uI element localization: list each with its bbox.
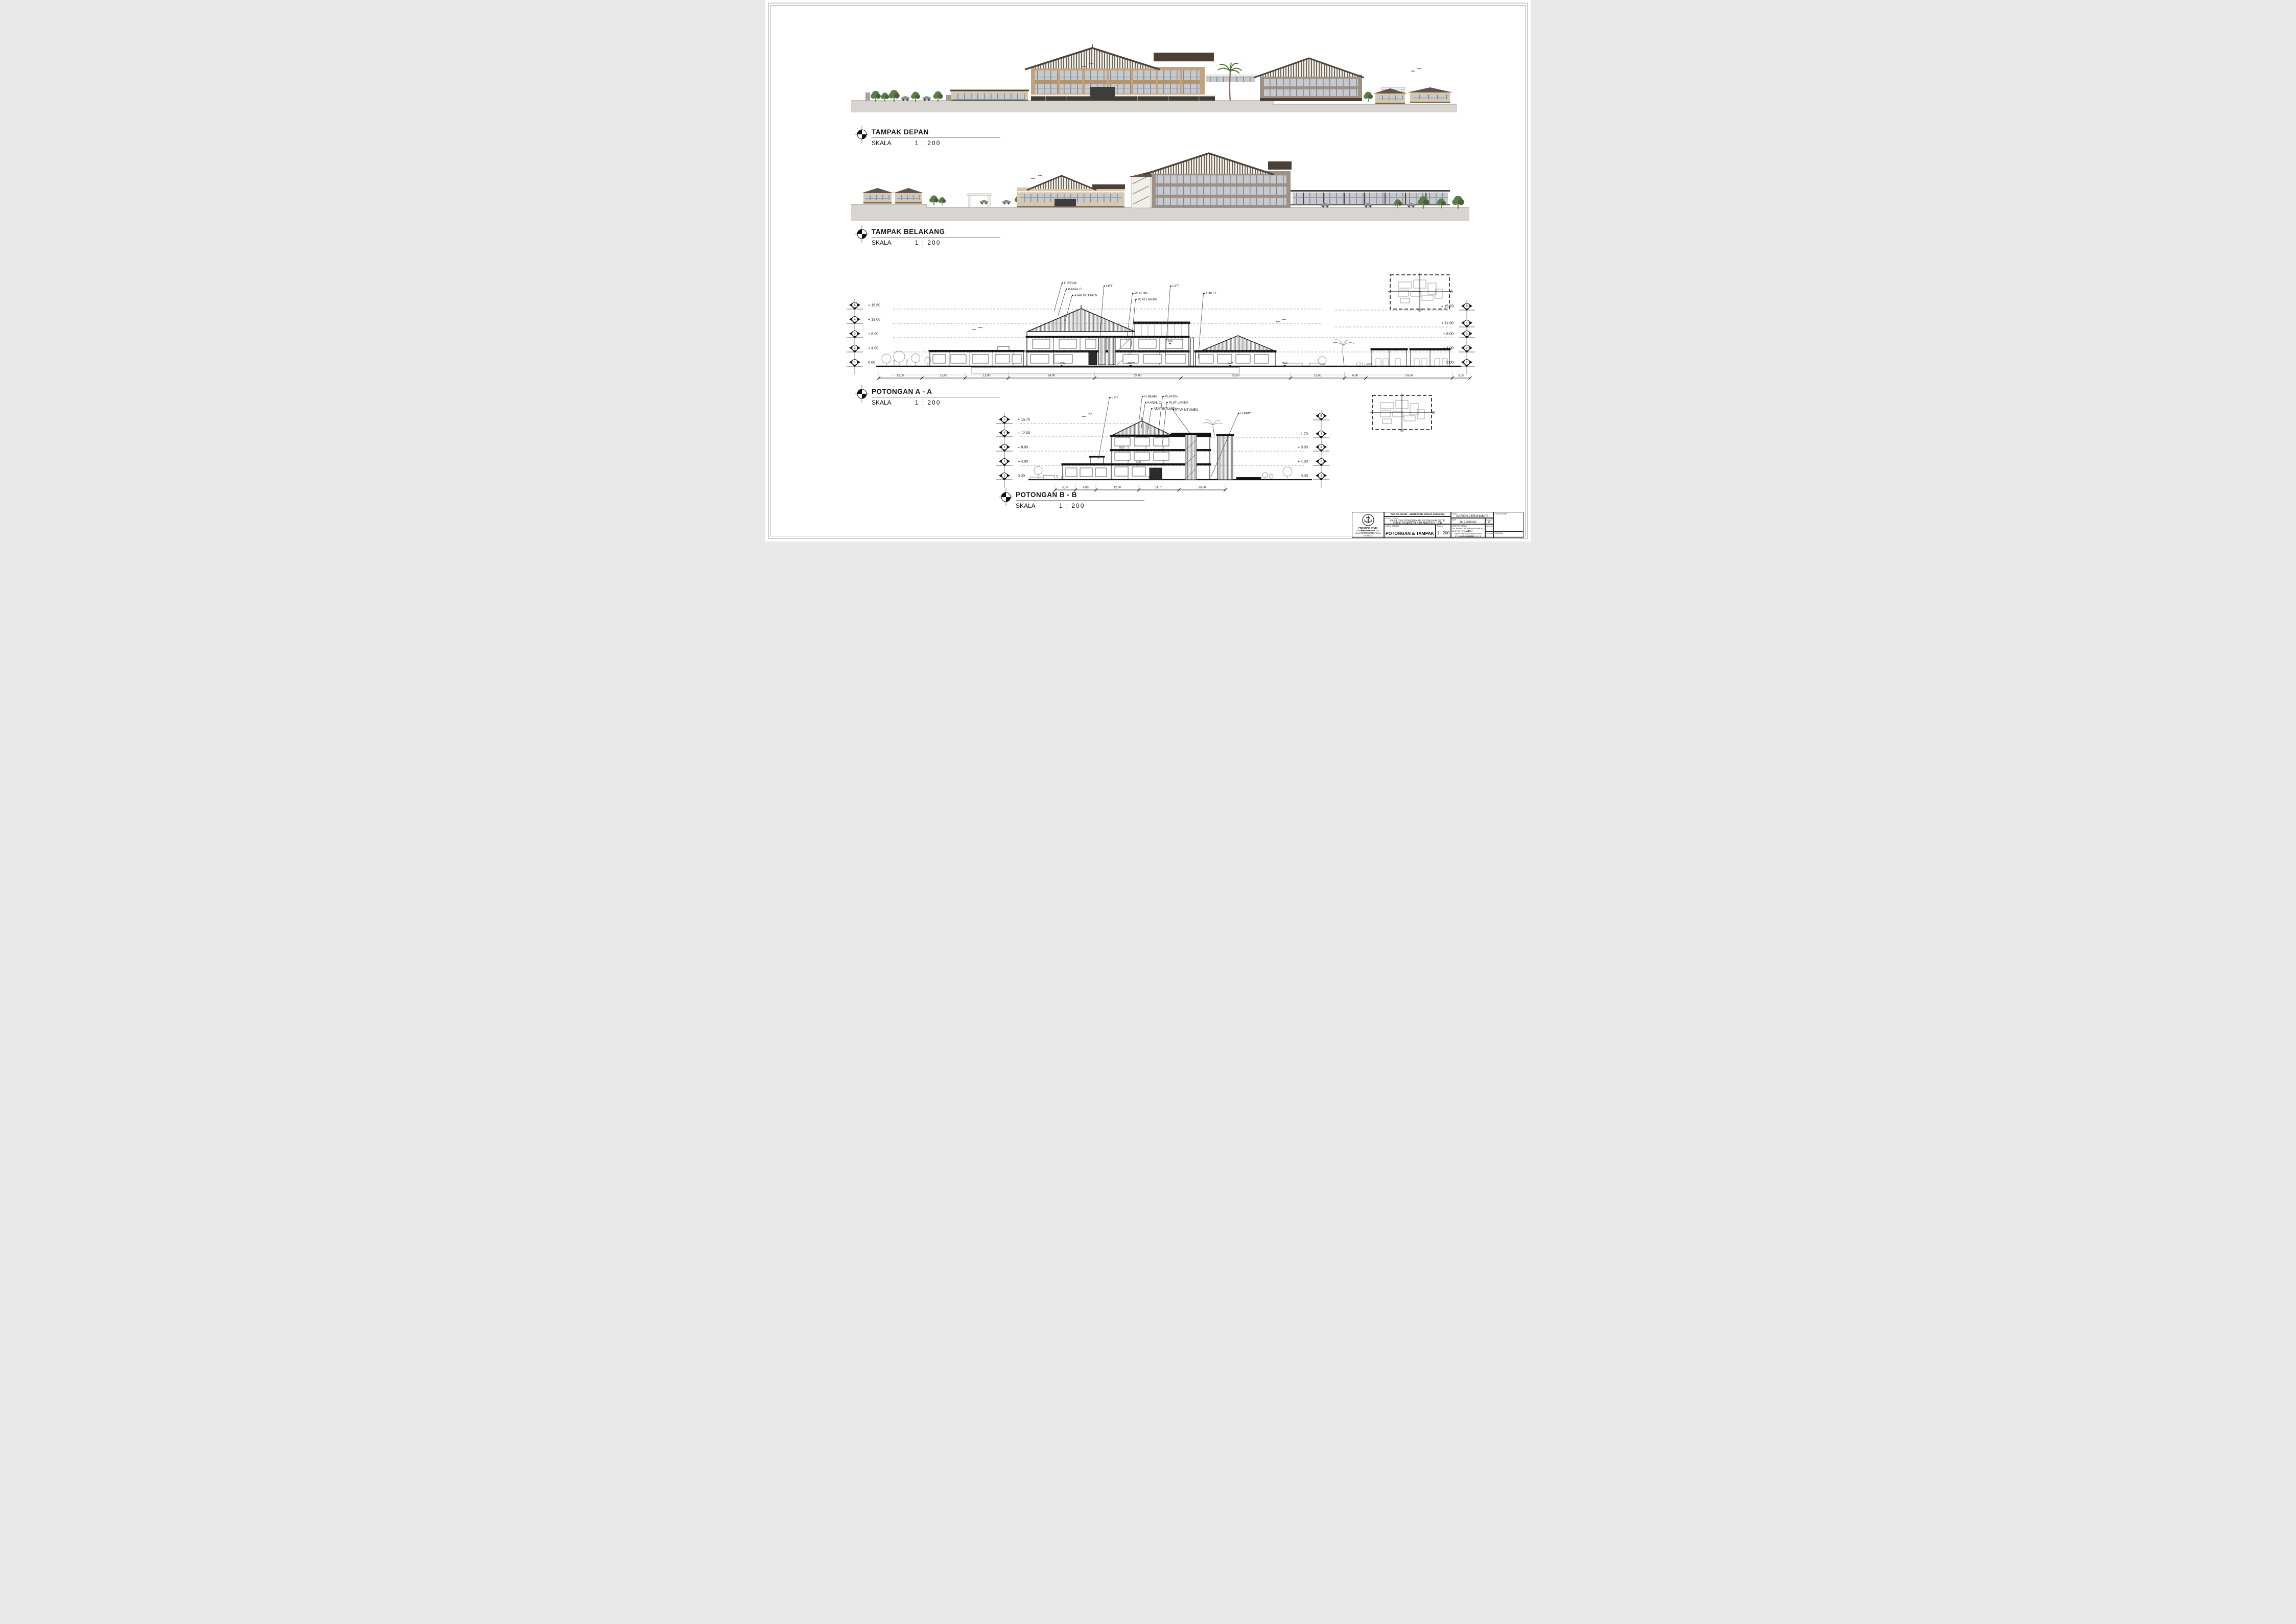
datum-symbol-icon [855, 225, 869, 243]
kelompok-cell: KELOMPOK 8 [1485, 518, 1493, 524]
label-rule [872, 137, 1000, 138]
nama-cell: NAMA AARON ABRAHAM P. [1451, 512, 1493, 518]
scale-label: SKALA [1016, 502, 1036, 509]
scale-value: 1 : 200 [915, 399, 941, 406]
svg-text:5,00: 5,00 [1458, 374, 1464, 378]
judul-gambar-label: JUDUL GAMBAR [1386, 525, 1400, 527]
svg-text:ATAP BITUMEN: ATAP BITUMEN [1074, 294, 1097, 297]
svg-text:+ 8.00: + 8.00 [868, 332, 878, 336]
svg-text:+ 15.60: + 15.60 [868, 303, 880, 308]
svg-text:+ 4.00: + 4.00 [1443, 346, 1454, 350]
lembar-label: LEMBAR [1487, 525, 1493, 527]
svg-text:12,50: 12,50 [1114, 486, 1121, 489]
view-title: TAMPAK DEPAN [872, 129, 1000, 136]
svg-text:8,00: 8,00 [1119, 446, 1124, 450]
svg-text:PLAFON: PLAFON [1135, 292, 1147, 295]
scale-label: SKALA [872, 239, 892, 246]
svg-text:LIFT: LIFT [1106, 285, 1113, 288]
scale-value: 1 : 200 [915, 139, 941, 147]
section-a-annotations: 5+ 15.604+ 12.003+ 8.002+ 4.0010.005+ 15… [847, 281, 1475, 380]
svg-text:LOBBY: LOBBY [1240, 412, 1251, 415]
label-rule [872, 397, 1000, 397]
svg-text:+ 11.70: + 11.70 [1296, 432, 1308, 436]
svg-text:+ 0.00: + 0.00 [1058, 362, 1065, 365]
svg-text:PLAT LANTAI: PLAT LANTAI [1138, 298, 1157, 301]
skala-value: 1 : 200 [1436, 531, 1450, 535]
scale-value: 1 : 200 [1059, 502, 1085, 509]
mentor-pendamping-2: IR. WANDA WIDIGDO, M. Si [1451, 535, 1485, 537]
skala-label: SKALA [1437, 525, 1443, 527]
datum-symbol-icon [999, 488, 1013, 506]
nrp-cell: NRP B12200080 [1451, 518, 1485, 524]
view-label-tampak-depan: TAMPAK DEPAN SKALA1 : 200 [855, 129, 1000, 147]
svg-text:LOBBY: LOBBY [1127, 362, 1135, 365]
view-label-tampak-belakang: TAMPAK BELAKANG SKALA1 : 200 [855, 228, 1000, 246]
view-label-potongan-b: POTONGAN B - B SKALA1 : 200 [999, 491, 1144, 509]
judul-gambar-cell: JUDUL GAMBAR POTONGAN & TAMPAK [1384, 524, 1436, 538]
view-title: POTONGAN A - A [872, 388, 1000, 395]
svg-text:13,50: 13,50 [1198, 486, 1206, 489]
svg-text:H BEAM: H BEAM [1064, 281, 1076, 285]
key-plan-b [1370, 393, 1435, 432]
svg-text:+ 8.00: + 8.00 [1298, 445, 1308, 450]
scale-label: SKALA [872, 399, 892, 406]
svg-text:0.00: 0.00 [868, 360, 875, 365]
title-block: PROGRAM STUDI ARSITEKTUR FAKULTAS TEKNIK… [1352, 512, 1524, 538]
tanggal-cell: TANGGAL [1493, 531, 1524, 538]
svg-text:6,00: 6,00 [1352, 374, 1358, 378]
svg-text:+ 15.70: + 15.70 [1018, 417, 1030, 422]
judul-tugas-cell: JUDUL TUGAS FASILITAS PENDIDIKAN SETINGK… [1384, 516, 1451, 524]
svg-text:LIFT: LIFT [1112, 396, 1118, 399]
pengesahan-cell: PENGESAHAN [1493, 512, 1524, 531]
student-name: AARON ABRAHAM P. [1451, 514, 1493, 518]
svg-text:ATAP BITUMEN: ATAP BITUMEN [1175, 408, 1198, 412]
svg-text:12,00: 12,00 [940, 374, 947, 378]
tampak-depan-elevation [851, 38, 1457, 121]
svg-text:+ 12.00: + 12.00 [1018, 431, 1030, 435]
university-logo-icon [1362, 513, 1375, 527]
svg-text:PLAT LANTAI: PLAT LANTAI [1169, 401, 1188, 405]
view-label-potongan-a: POTONGAN A - A SKALA1 : 200 [855, 388, 1000, 406]
svg-text:12,00: 12,00 [897, 374, 904, 378]
svg-text:15,00: 15,00 [1314, 374, 1321, 378]
student-id: B12200080 [1451, 521, 1485, 524]
svg-text:24,00: 24,00 [1405, 374, 1413, 378]
svg-text:24,00: 24,00 [1134, 374, 1142, 378]
label-rule [1016, 500, 1144, 501]
svg-text:6,00: 6,00 [1083, 486, 1088, 489]
title-block-logo-cell: PROGRAM STUDI ARSITEKTUR FAKULTAS TEKNIK… [1352, 512, 1384, 538]
pengesahan-label: PENGESAHAN [1495, 513, 1508, 515]
institution-university: UNIVERSITAS KRISTEN PETRA [1352, 532, 1384, 534]
drawing-sheet: TAMPAK DEPAN SKALA1 : 200 [765, 0, 1531, 542]
datum-symbol-icon [855, 126, 869, 143]
skala-cell: SKALA 1 : 200 [1436, 524, 1451, 538]
svg-text:+ 8.00: + 8.00 [1443, 332, 1454, 336]
svg-text:+ 4.00: + 4.00 [1298, 459, 1308, 464]
svg-text:TOILET: TOILET [1206, 292, 1217, 295]
svg-text:0.00: 0.00 [1282, 362, 1287, 365]
svg-text:4,00: 4,00 [1136, 461, 1141, 464]
svg-text:+ 15.70: + 15.70 [1441, 304, 1454, 309]
svg-text:30,50: 30,50 [1232, 374, 1239, 378]
potongan-a-section: 5+ 15.604+ 12.003+ 8.002+ 4.0010.005+ 15… [845, 265, 1475, 388]
svg-text:4,00: 4,00 [1167, 340, 1173, 343]
svg-text:KANAL C: KANAL C [1068, 288, 1082, 291]
view-title: POTONGAN B - B [1016, 491, 1144, 499]
scale-label: SKALA [872, 139, 892, 147]
institution-city: SURABAYA [1352, 535, 1384, 537]
svg-text:+ 0.00: + 0.00 [1146, 476, 1153, 479]
svg-text:6,00: 6,00 [1062, 486, 1068, 489]
view-title: TAMPAK BELAKANG [872, 228, 1000, 236]
svg-text:KANAL C: KANAL C [1147, 401, 1161, 405]
svg-text:H BEAM: H BEAM [1144, 395, 1157, 398]
svg-text:12,00: 12,00 [983, 374, 991, 378]
svg-text:LIFT: LIFT [1173, 285, 1179, 288]
mentor-pendamping-label: MENTOR PENDAMPING [1452, 530, 1473, 532]
svg-text:+ 8.00: + 8.00 [1018, 445, 1028, 450]
svg-text:+ 4.00: + 4.00 [868, 346, 878, 350]
svg-text:+ 12.00: + 12.00 [868, 317, 880, 322]
svg-text:11,70: 11,70 [1155, 486, 1162, 489]
svg-text:+ 4.00: + 4.00 [1018, 459, 1028, 464]
svg-text:0.00: 0.00 [1018, 474, 1025, 478]
svg-text:0.00: 0.00 [1446, 360, 1454, 365]
svg-text:0.00: 0.00 [1228, 362, 1233, 365]
datum-symbol-icon [855, 385, 869, 403]
lembar-cell: LEMBAR [1485, 524, 1493, 531]
kelompok-value: 8 [1486, 521, 1493, 524]
tanggal-label: TANGGAL [1495, 532, 1504, 534]
mentor-cell: MENTOR UTAMA IR. BENNY POERBANTANOE, MSP… [1451, 524, 1485, 538]
svg-text:0.00: 0.00 [1301, 474, 1308, 478]
svg-text:+ 11.00: + 11.00 [1441, 321, 1454, 325]
project-header: TUGAS AKHIR - SEMESTER GENAP 2023/2024 [1385, 513, 1450, 516]
potongan-b-section: 5+ 15.704+ 12.003+ 8.002+ 4.0010.0054+ 1… [985, 387, 1445, 498]
jumlah-cell: JUMLAH [1485, 531, 1493, 538]
label-rule [872, 237, 1000, 238]
svg-text:PLAFON: PLAFON [1165, 395, 1178, 398]
svg-text:24,00: 24,00 [1048, 374, 1056, 378]
title-block-header-cell: TUGAS AKHIR - SEMESTER GENAP 2023/2024 [1384, 512, 1451, 516]
scale-value: 1 : 200 [915, 239, 941, 246]
jumlah-label: JUMLAH [1487, 532, 1493, 534]
tampak-belakang-elevation [851, 147, 1471, 222]
drawing-title: POTONGAN & TAMPAK [1385, 531, 1435, 536]
